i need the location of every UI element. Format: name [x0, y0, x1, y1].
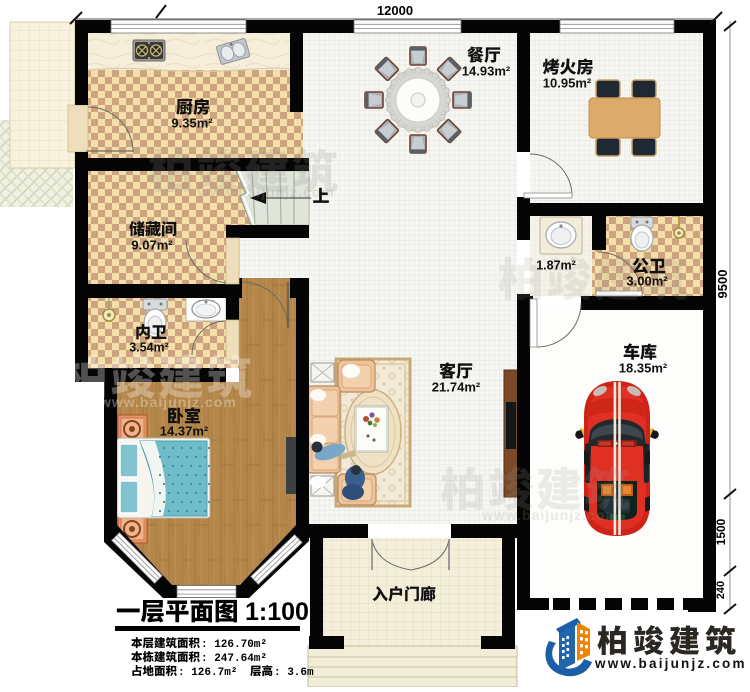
svg-text:: 3.6m: : 3.6m — [274, 667, 314, 679]
svg-text:21.74m²: 21.74m² — [432, 380, 481, 395]
svg-text:1500: 1500 — [714, 518, 728, 545]
svg-text:9.07m²: 9.07m² — [131, 238, 173, 253]
svg-text:9.35m²: 9.35m² — [171, 116, 213, 131]
svg-text:3.00m²: 3.00m² — [626, 274, 668, 289]
svg-text:14.37m²: 14.37m² — [160, 424, 209, 439]
svg-text:: 126.7m²: : 126.7m² — [178, 667, 237, 679]
svg-text:www.baijunjz.com: www.baijunjz.com — [594, 656, 747, 671]
svg-text:10.95m²: 10.95m² — [543, 76, 592, 91]
svg-text:3.54m²: 3.54m² — [129, 341, 169, 355]
svg-text:14.93m²: 14.93m² — [462, 64, 511, 79]
svg-text:www.baijunjz.com: www.baijunjz.com — [481, 507, 619, 523]
svg-text:1:100: 1:100 — [245, 598, 309, 626]
svg-text:9500: 9500 — [715, 270, 730, 299]
svg-text:: 126.70m²: : 126.70m² — [201, 639, 267, 651]
svg-text:240: 240 — [715, 581, 727, 599]
svg-text:18.35m²: 18.35m² — [619, 361, 668, 376]
svg-text:www.baijunjz.com: www.baijunjz.com — [197, 184, 335, 200]
svg-text:: 247.64m²: : 247.64m² — [201, 653, 267, 665]
svg-text:www.baijunjz.com: www.baijunjz.com — [99, 394, 237, 410]
svg-text:1.87m²: 1.87m² — [536, 259, 576, 273]
svg-text:12000: 12000 — [377, 3, 413, 18]
